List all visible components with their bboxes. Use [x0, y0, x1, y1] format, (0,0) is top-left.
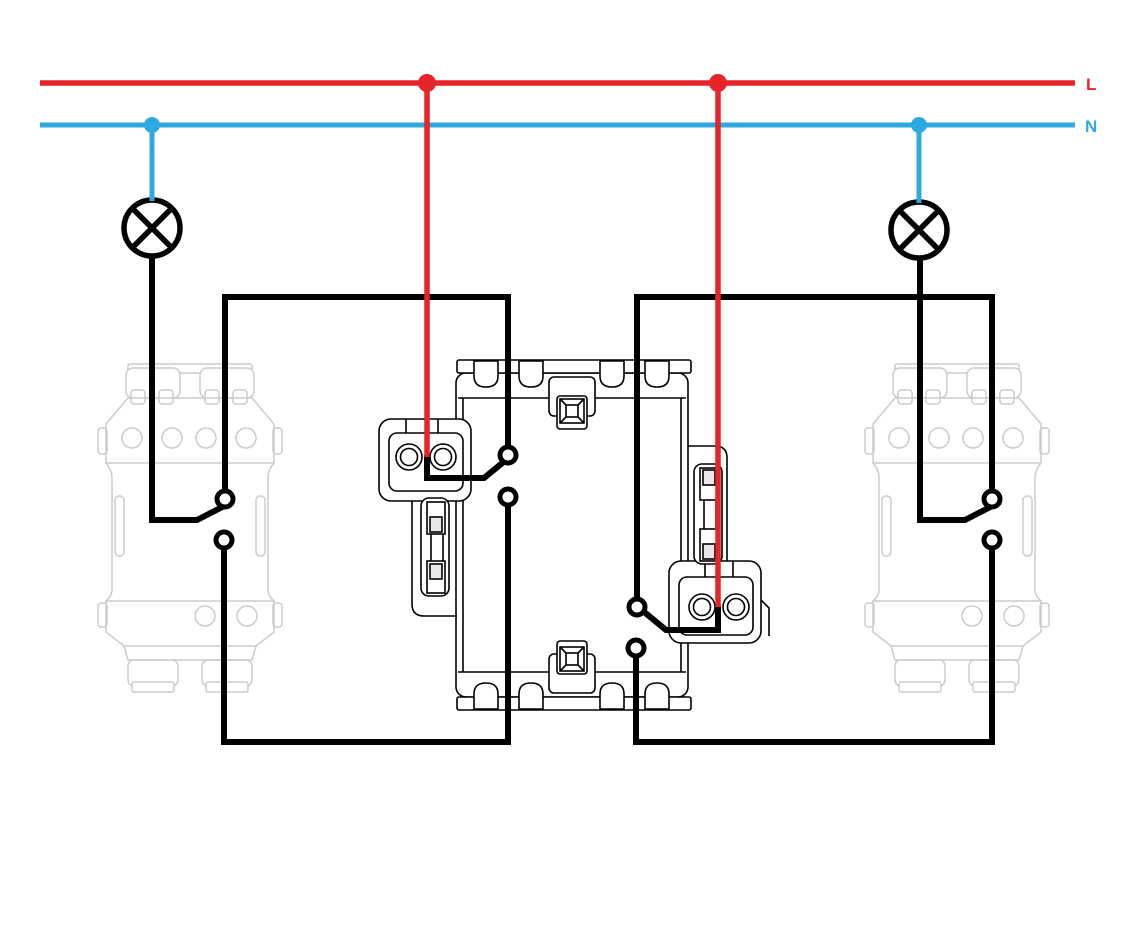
contact [628, 640, 644, 656]
contact [984, 532, 1000, 548]
left-switch-mechanism-outline [98, 364, 282, 692]
contact [629, 599, 645, 615]
wiring-diagram: L N [0, 0, 1144, 925]
contact [217, 491, 233, 507]
right-lamp-symbol [891, 202, 947, 258]
contact [500, 489, 516, 505]
contact [500, 447, 516, 463]
contact [984, 491, 1000, 507]
left-lamp-symbol [124, 200, 180, 256]
junction-dot [911, 117, 927, 133]
live-label: L [1086, 75, 1096, 94]
wiring-diagram-canvas: L N [0, 0, 1144, 925]
junction-dot [709, 74, 727, 92]
right-switch-mechanism-outline [865, 364, 1049, 692]
neutral-rail [40, 125, 1075, 203]
junction-dot [144, 117, 160, 133]
junction-dot [418, 74, 436, 92]
lamps [124, 200, 947, 258]
contact [216, 532, 232, 548]
neutral-label: N [1085, 117, 1097, 136]
central-switch-insert [379, 360, 769, 710]
